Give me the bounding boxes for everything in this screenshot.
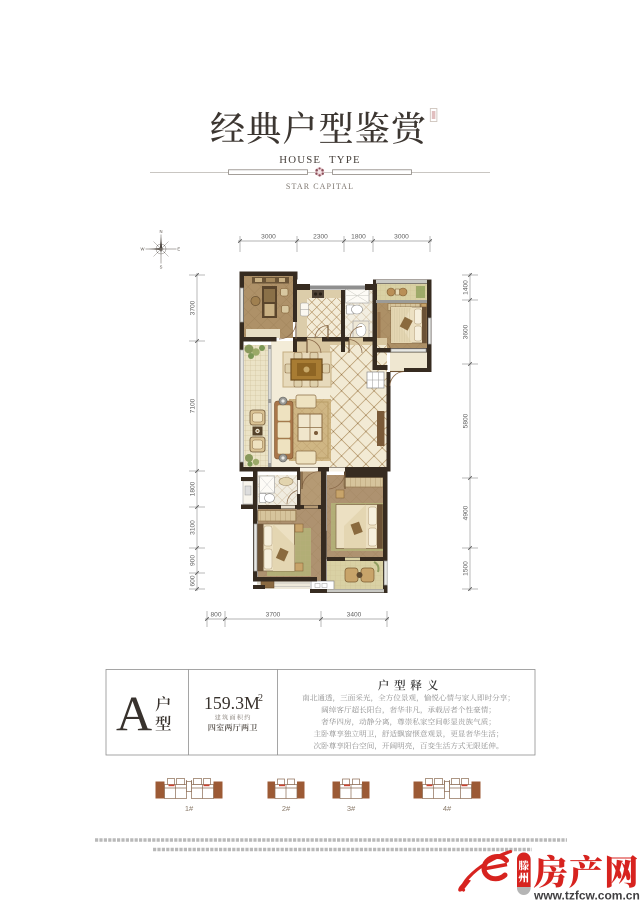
svg-text:1400: 1400 [463,280,470,295]
svg-text:7100: 7100 [190,398,197,413]
svg-text:1800: 1800 [351,234,366,241]
svg-text:A: A [116,686,152,742]
svg-text:5800: 5800 [463,413,470,428]
svg-text:159.3M: 159.3M [204,693,260,713]
svg-text:2: 2 [258,693,263,704]
svg-text:E: E [177,246,180,251]
svg-text:1#: 1# [185,804,194,813]
svg-text:3000: 3000 [261,234,276,241]
svg-text:3600: 3600 [463,324,470,339]
svg-text:1500: 1500 [463,561,470,576]
svg-text:3100: 3100 [190,520,197,535]
svg-text:STAR CAPITAL: STAR CAPITAL [286,182,354,191]
svg-text:600: 600 [190,575,197,586]
svg-text:2300: 2300 [313,234,328,241]
svg-text:S: S [160,265,163,270]
svg-text:4900: 4900 [463,505,470,520]
svg-text:900: 900 [190,555,197,566]
svg-text:3400: 3400 [347,612,362,619]
svg-text:HOUSE TYPE: HOUSE TYPE [279,154,361,166]
svg-text:2#: 2# [282,804,291,813]
svg-text:3#: 3# [347,804,356,813]
svg-text:www.tzfcw.com.cn: www.tzfcw.com.cn [533,889,640,903]
svg-text:1800: 1800 [190,481,197,496]
svg-text:3700: 3700 [266,612,281,619]
svg-text:W: W [141,246,145,251]
svg-text:N: N [159,229,162,234]
svg-text:3000: 3000 [394,234,409,241]
svg-text:800: 800 [210,612,221,619]
svg-text:4#: 4# [443,804,452,813]
svg-text:3700: 3700 [190,300,197,315]
